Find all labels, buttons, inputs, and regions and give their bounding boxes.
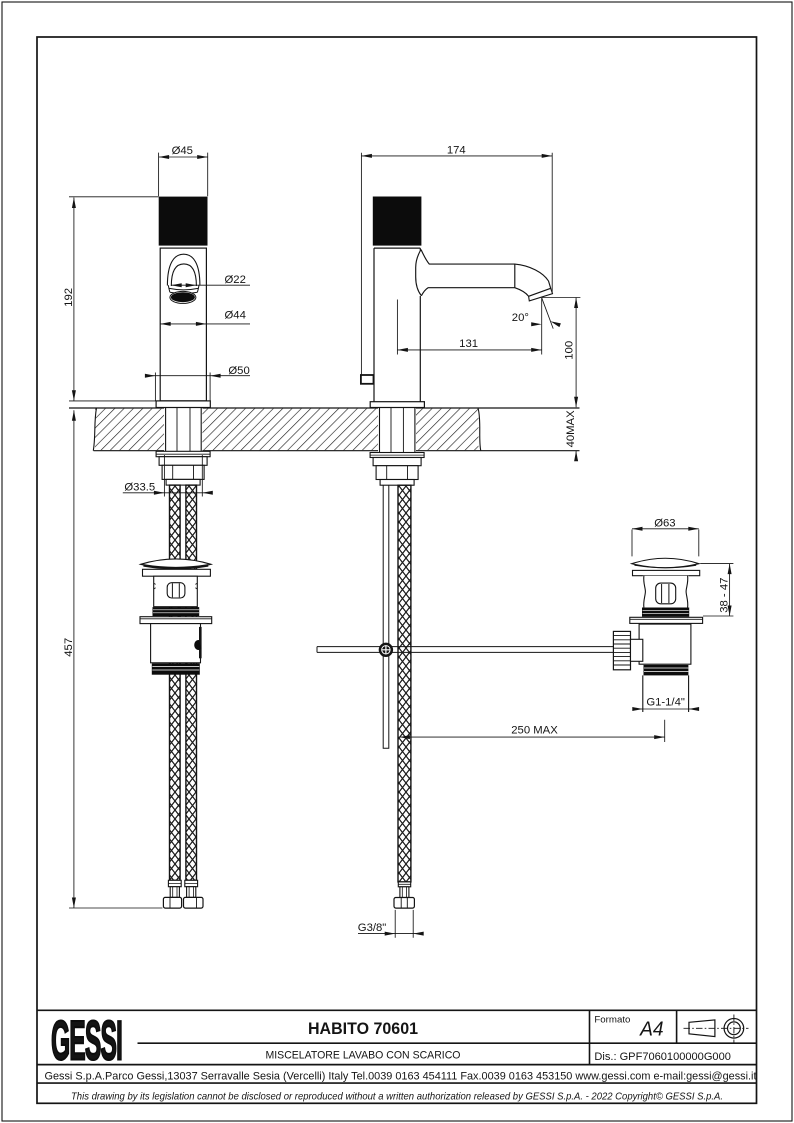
- svg-text:457: 457: [63, 638, 75, 657]
- svg-text:40MAX: 40MAX: [565, 410, 577, 448]
- svg-text:100: 100: [564, 341, 576, 360]
- svg-text:Ø22: Ø22: [225, 274, 246, 286]
- svg-text:Gessi S.p.A.Parco Gessi,13037: Gessi S.p.A.Parco Gessi,13037 Serravalle…: [45, 1071, 758, 1083]
- svg-text:20°: 20°: [512, 312, 529, 324]
- svg-text:G3/8": G3/8": [358, 922, 387, 934]
- svg-text:174: 174: [447, 144, 466, 156]
- svg-text:38 - 47: 38 - 47: [719, 578, 731, 613]
- svg-text:GESSI: GESSI: [51, 1009, 122, 1072]
- svg-text:A4: A4: [639, 1019, 663, 1041]
- svg-text:Ø33.5: Ø33.5: [124, 481, 155, 493]
- svg-text:250 MAX: 250 MAX: [511, 725, 558, 737]
- svg-text:Ø63: Ø63: [654, 517, 675, 529]
- svg-text:Dis.: GPF7060100000G000: Dis.: GPF7060100000G000: [594, 1051, 731, 1063]
- svg-text:Ø44: Ø44: [225, 310, 246, 322]
- svg-text:Formato: Formato: [594, 1014, 630, 1024]
- svg-text:HABITO 70601: HABITO 70601: [308, 1019, 418, 1038]
- svg-text:MISCELATORE LAVABO CON SCARICO: MISCELATORE LAVABO CON SCARICO: [266, 1049, 461, 1061]
- svg-text:This drawing by its legislatio: This drawing by its legislation cannot b…: [71, 1092, 723, 1103]
- svg-text:G1-1/4": G1-1/4": [646, 697, 685, 709]
- svg-text:131: 131: [459, 338, 478, 350]
- svg-text:192: 192: [63, 288, 75, 307]
- svg-text:Ø50: Ø50: [228, 365, 249, 377]
- svg-text:Ø45: Ø45: [172, 145, 193, 157]
